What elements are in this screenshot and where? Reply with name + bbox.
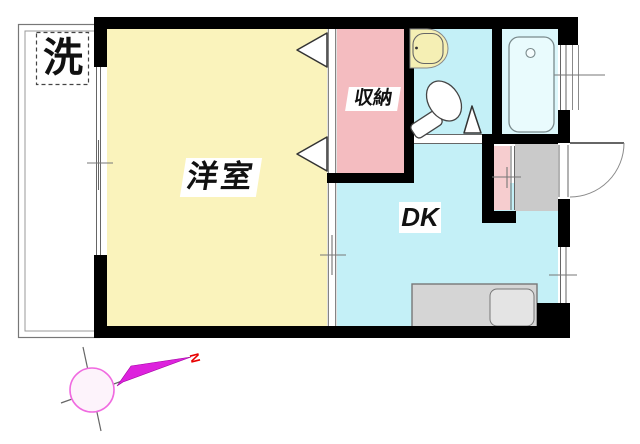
closet-label: 収納 [345, 87, 401, 111]
entrance-door [558, 143, 624, 199]
bathtub-faucet [526, 49, 535, 58]
washbasin [410, 29, 448, 68]
top-right-corner [558, 17, 578, 45]
entry-left-wall [482, 134, 494, 223]
kitchen-counter [412, 284, 537, 332]
bath-divider-wall [492, 29, 502, 134]
shoe-cabinet [494, 146, 510, 210]
compass-north-arrow [117, 357, 191, 386]
laundry-label: 洗 [38, 34, 88, 82]
bottom-right-corner [537, 303, 570, 338]
top-wall [95, 17, 578, 29]
floorplan-canvas: N [0, 0, 640, 444]
compass-circle [70, 368, 114, 412]
kitchen-sink [490, 289, 534, 326]
entrance-area [492, 144, 558, 211]
window-bath [551, 45, 605, 110]
dk-label: DK [399, 202, 441, 233]
compass: N [61, 347, 203, 431]
bathtub [509, 37, 554, 132]
closet-bottom-wall [327, 173, 414, 183]
bath-bottom-wall [482, 134, 570, 144]
genkan-floor [515, 144, 558, 211]
left-wall-top [94, 17, 107, 67]
door-swing-arc [570, 143, 624, 197]
left-wall-bottom [94, 255, 107, 338]
entry-bottom-wall [482, 211, 516, 223]
western-room-label: 洋室 [180, 158, 262, 197]
floorplan-page: N 洋室 収納 DK 洗 [0, 0, 640, 444]
right-wall-a [558, 110, 570, 143]
bottom-wall [94, 326, 570, 338]
compass-north-label: N [187, 352, 204, 365]
right-wall-b [558, 199, 570, 247]
